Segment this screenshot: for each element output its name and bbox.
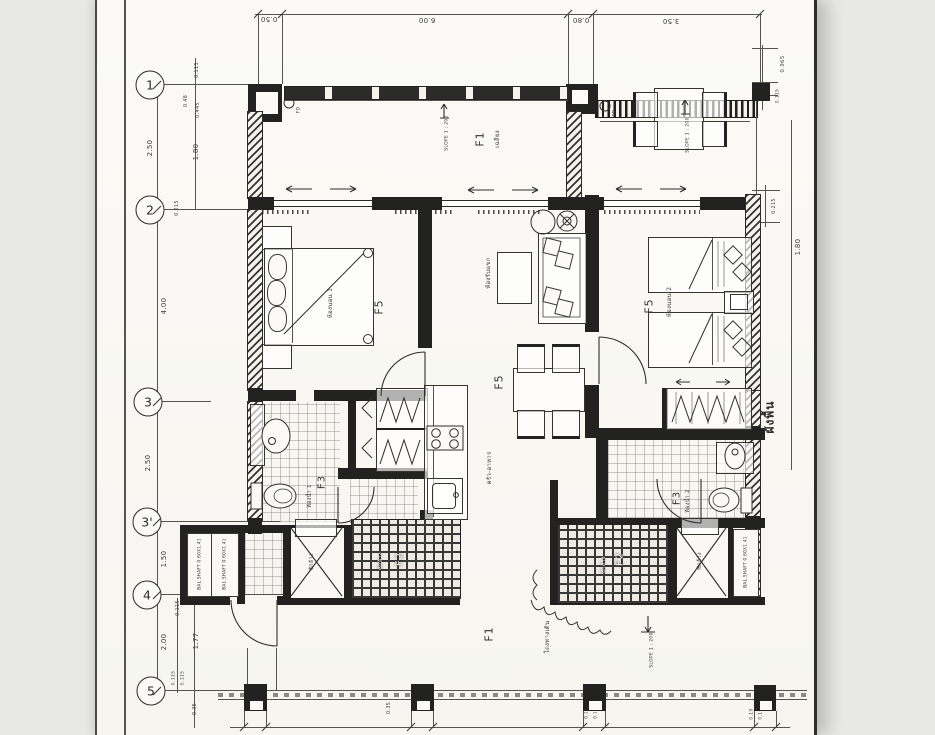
round-table [531, 210, 555, 234]
door-bedroom2 [599, 337, 646, 384]
sofa-inner [543, 238, 580, 317]
door-bedroom1 [381, 352, 425, 396]
wardrobe-arrows [676, 379, 730, 385]
blanket-fold [689, 240, 712, 363]
slope-arrows [440, 100, 690, 632]
faucet [454, 493, 459, 498]
bed-post [364, 249, 373, 258]
slope-arrow-icon [681, 100, 690, 114]
bath1-basin [262, 419, 290, 453]
pillow-diamond [733, 263, 751, 281]
bed-diagonal [284, 253, 364, 334]
closet-door-chevron [362, 398, 372, 458]
toilet-tank [251, 483, 262, 509]
hanging-clothes-icon [380, 440, 420, 464]
closet-symbols [362, 379, 744, 464]
door-entry [231, 600, 277, 646]
x-cross [291, 528, 342, 596]
toilet-bowl [264, 484, 296, 508]
sliding-door-arrows [286, 186, 686, 193]
plan-linework [0, 0, 935, 735]
toilet-bowl [709, 488, 739, 512]
pillow-ruffle [718, 241, 724, 362]
door-bath1 [338, 487, 374, 523]
slope-arrow-icon [641, 616, 655, 632]
bath2-basin [725, 443, 745, 469]
door-bath2 [657, 479, 701, 523]
fan-blades [560, 214, 574, 228]
x-cross [677, 528, 726, 596]
door-arcs [231, 337, 701, 646]
pillow-diamond [724, 246, 742, 264]
dim-ticks [153, 10, 780, 731]
floor-drain-icon [284, 98, 294, 108]
floor-drain-icon [600, 101, 610, 111]
hanging-clothes-icon [380, 398, 420, 422]
shaft-crosses [291, 528, 726, 596]
scanned-floor-plan: 1 2 3 3' 4 5 0.50 6.00 0.80 3.50 0.115 0… [0, 0, 935, 735]
furniture-details [251, 98, 752, 513]
pillow-diamond [733, 338, 751, 356]
slope-arrow-icon [440, 104, 449, 118]
toilet-tank [741, 488, 752, 513]
revision-cloud [531, 570, 611, 634]
pillow-diamond [724, 321, 742, 339]
bed-post [364, 335, 373, 344]
